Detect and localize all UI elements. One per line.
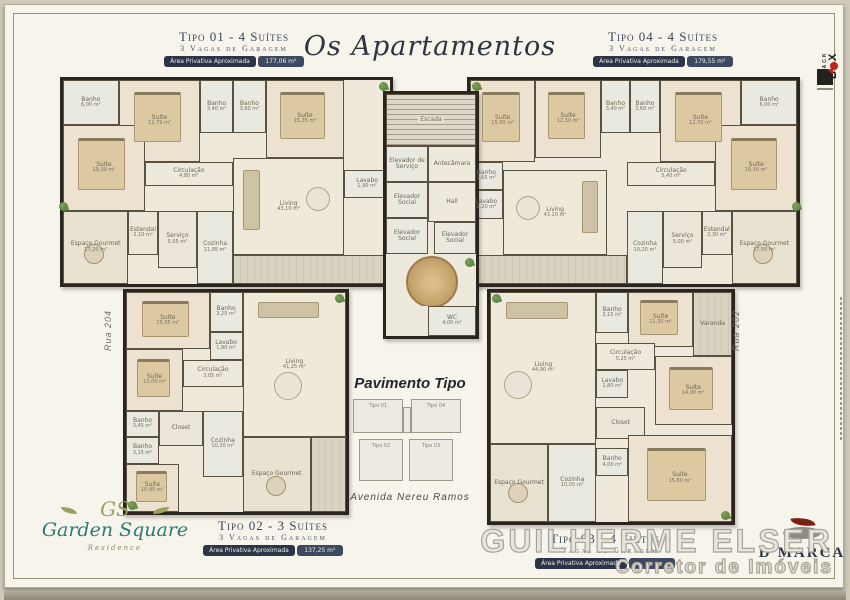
room-banho: Banho3,15 m² (126, 437, 159, 463)
room-living: Living43,10 m² (503, 170, 608, 256)
floorplan-tipo02: Suíte15,35 m² Banho3,25 m² Lavabo1,90 m²… (123, 289, 349, 515)
room-suite: Suíte12,30 m² (535, 80, 600, 158)
room-banho: Banho4,00 m² (596, 448, 627, 476)
floorplan-tipo04: Suíte15,50 m² Suíte12,30 m² Banho3,40 m²… (467, 77, 800, 287)
plant (128, 501, 137, 510)
tipo04-title: Tipo 04 - 4 Suítes (563, 30, 763, 43)
room-cozinha: Cozinha10,20 m² (627, 211, 663, 284)
room-varanda: Varanda (693, 292, 732, 356)
keyplan-tipo02: Tipo 02 (359, 439, 403, 481)
vertical-fine-print (840, 297, 842, 442)
room-hall: Hall (428, 182, 476, 222)
header-tipo04: Tipo 04 - 4 Suítes 3 Vagas de Garagem Ár… (563, 30, 763, 67)
room-gourmet: Espaço Gourmet17,50 m² (732, 211, 797, 284)
room-banho: Banho3,25 m² (210, 292, 243, 332)
room-suite-master: Suíte19,30 m² (715, 125, 797, 211)
poster-sheet: Os Apartamentos Tipo 01 - 4 Suítes 3 Vag… (4, 4, 844, 588)
keyplan-tipo01: Tipo 01 (353, 399, 403, 433)
balcony (470, 255, 627, 284)
vine-leaf (61, 507, 77, 514)
tipo04-area-badge: Área Privativa Aproximada 179,55 m² (563, 56, 763, 67)
room-servico: Serviço5,00 m² (663, 211, 702, 268)
room-circulacao: Circulação5,40 m² (627, 162, 715, 186)
room-elevador-social: Elevador Social (386, 182, 428, 218)
watermark-name: GUILHERME ELSER (480, 525, 833, 558)
area-label: Área Privativa Aproximada (203, 545, 295, 556)
balcony (233, 255, 390, 284)
watermark-role: Corretor de Imóveis (480, 558, 833, 577)
floorplan-tipo03: Living44,90 m² Banho3,15 m² Suíte11,30 m… (487, 289, 735, 525)
gs-monogram: GS (33, 499, 197, 519)
plant (379, 82, 388, 91)
plant (792, 202, 801, 211)
dining-table (504, 371, 532, 399)
room-suite-master: Suíte19,30 m² (63, 125, 145, 211)
room-banho: Banho3,40 m² (200, 80, 233, 133)
area-value: 179,55 m² (687, 56, 733, 67)
room-banho: Banho6,00 m² (63, 80, 119, 125)
room-banho: Banho3,60 m² (233, 80, 266, 133)
header-tipo02: Tipo 02 - 3 Suítes 3 Vagas de Garagem Ár… (173, 519, 373, 556)
street-label-rua-202: Rua 202 (731, 293, 741, 351)
room-gourmet: Espaço Gourmet (490, 444, 548, 522)
area-value: 137,25 m² (297, 545, 343, 556)
room-elevador-social: Elevador Social (434, 222, 476, 254)
tipo02-title: Tipo 02 - 3 Suítes (173, 519, 373, 532)
room-suite: Suíte15,35 m² (126, 292, 210, 349)
floorplan-tipo01: Banho6,00 m² Suíte12,79 m² Banho3,40 m² … (60, 77, 393, 287)
sofa (243, 170, 260, 230)
room-suite: Suíte13,00 m² (126, 349, 183, 411)
tipo01-title: Tipo 01 - 4 Suítes (134, 30, 334, 43)
room-servico: Serviço5,05 m² (158, 211, 197, 268)
room-banho: Banho3,40 m² (601, 80, 630, 133)
room-gourmet: Espaço Gourmet17,20 m² (63, 211, 128, 284)
sofa (258, 302, 319, 318)
street-label-rua-204: Rua 204 (103, 293, 113, 351)
building-core: Escada Elevador de Serviço Antecâmara El… (383, 91, 479, 339)
room-banho: Banho3,15 m² (596, 292, 627, 333)
room-cozinha: Cozinha10,05 m² (548, 444, 596, 522)
room-lavabo: Lavabo1,90 m² (210, 332, 243, 361)
room-circulacao: Circulação4,80 m² (145, 162, 233, 186)
room-estendal: Estendal2,30 m² (702, 211, 731, 256)
pavimento-title: Pavimento Tipo (335, 375, 485, 392)
avenue-label: Avenida Nereu Ramos (327, 492, 493, 503)
room-suite: Suíte15,35 m² (266, 80, 344, 158)
room-suite: Suíte14,00 m² (655, 356, 732, 425)
page-title: Os Apartamentos (300, 31, 560, 62)
plant (721, 511, 730, 520)
room-suite: Suíte11,30 m² (628, 292, 693, 347)
room-circulacao: Circulação5,25 m² (596, 343, 654, 371)
tipo01-subtitle: 3 Vagas de Garagem (134, 44, 334, 53)
dining-table (516, 196, 540, 220)
room-cozinha: Cozinha10,20 m² (203, 411, 243, 477)
builder-logo (817, 69, 833, 85)
header-tipo01: Tipo 01 - 4 Suítes 3 Vagas de Garagem Ár… (134, 30, 334, 67)
plant (492, 294, 501, 303)
keyplan-tipo03: Tipo 03 (409, 439, 453, 481)
vine-leaf (153, 507, 169, 514)
garden-square-name: Garden Square (33, 519, 197, 542)
sofa (582, 181, 598, 233)
room-elevador-servico: Elevador de Serviço (386, 146, 428, 182)
tipo02-area-badge: Área Privativa Aproximada 137,25 m² (173, 545, 373, 556)
keyplan: Tipo 01 Tipo 04 Tipo 02 Tipo 03 (351, 399, 465, 485)
area-value: 177,06 m² (258, 56, 304, 67)
dining-table (306, 187, 330, 211)
area-label: Área Privativa Aproximada (164, 56, 256, 67)
room-gourmet: Espaço Gourmet (243, 437, 311, 512)
round-table (266, 476, 286, 496)
tipo04-subtitle: 3 Vagas de Garagem (563, 44, 763, 53)
room-suite: Suíte15,60 m² (628, 435, 732, 522)
builder-logo-caption (817, 88, 833, 90)
sheet-shadow (4, 591, 846, 600)
room-closet: Closet (159, 411, 203, 446)
keyplan-tipo04: Tipo 04 (411, 399, 461, 433)
room-living: Living44,90 m² (490, 292, 596, 444)
room-estendal: Estendal2,10 m² (128, 211, 157, 256)
tipo02-subtitle: 3 Vagas de Garagem (173, 533, 373, 542)
dining-table (274, 372, 302, 400)
ornamental-rug (406, 256, 458, 306)
plant (335, 294, 344, 303)
keyplan-core (403, 407, 411, 433)
room-circulacao: Circulação3,05 m² (183, 360, 242, 386)
room-elevador-social: Elevador Social (386, 218, 428, 254)
room-lavabo: Lavabo1,80 m² (596, 370, 627, 398)
room-suite: Suíte15,50 m² (470, 80, 535, 162)
room-banho: Banho6,00 m² (741, 80, 797, 125)
room-banho: Banho3,60 m² (630, 80, 659, 133)
room-wc: WC4,00 m² (428, 306, 476, 336)
sofa (506, 302, 569, 319)
plant (465, 258, 474, 267)
room-living: Living41,25 m² (243, 292, 346, 437)
garden-square-logo: GS Garden Square Residence (33, 499, 197, 552)
room-escada: Escada (386, 94, 476, 146)
watermark: GUILHERME ELSER Corretor de Imóveis (480, 525, 833, 577)
area-label: Área Privativa Aproximada (593, 56, 685, 67)
core-lobby (386, 254, 476, 306)
room-cozinha: Cozinha11,95 m² (197, 211, 233, 284)
room-living: Living43,10 m² (233, 158, 344, 256)
tipo01-area-badge: Área Privativa Aproximada 177,06 m² (134, 56, 334, 67)
room-banho: Banho3,45 m² (126, 411, 159, 437)
plant (472, 82, 481, 91)
room-antecamara: Antecâmara (428, 146, 476, 182)
garden-square-sub: Residence (33, 544, 197, 552)
